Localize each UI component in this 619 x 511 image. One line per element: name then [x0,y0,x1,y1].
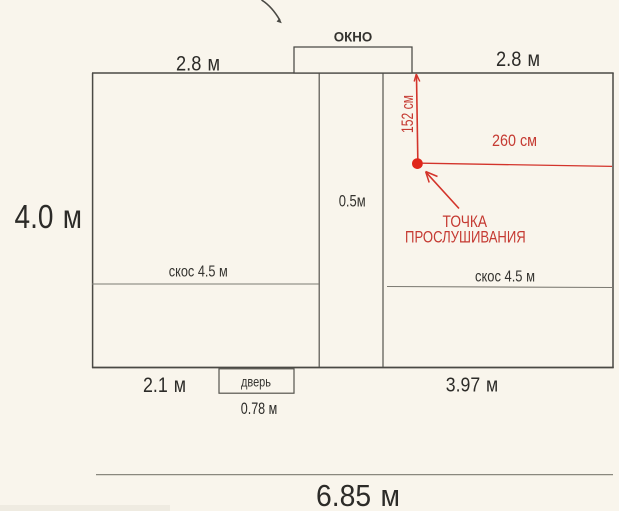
svg-text:скос 4.5 м: скос 4.5 м [475,268,535,285]
svg-text:0.5м: 0.5м [339,191,366,210]
svg-text:152 см: 152 см [398,95,417,133]
svg-text:0.78 м: 0.78 м [241,400,278,418]
svg-text:2.8 м: 2.8 м [496,48,540,71]
svg-text:2.1 м: 2.1 м [143,374,186,397]
svg-text:260 см: 260 см [492,132,537,150]
svg-text:4.0 м: 4.0 м [15,198,83,235]
svg-text:6.85 м: 6.85 м [316,479,400,511]
svg-text:ПРОСЛУШИВАНИЯ: ПРОСЛУШИВАНИЯ [405,229,526,247]
svg-text:ОКНО: ОКНО [334,28,373,44]
svg-text:скос 4.5 м: скос 4.5 м [169,264,228,281]
svg-text:дверь: дверь [241,374,271,390]
svg-text:3.97 м: 3.97 м [446,375,498,397]
svg-text:2.8 м: 2.8 м [176,52,220,75]
